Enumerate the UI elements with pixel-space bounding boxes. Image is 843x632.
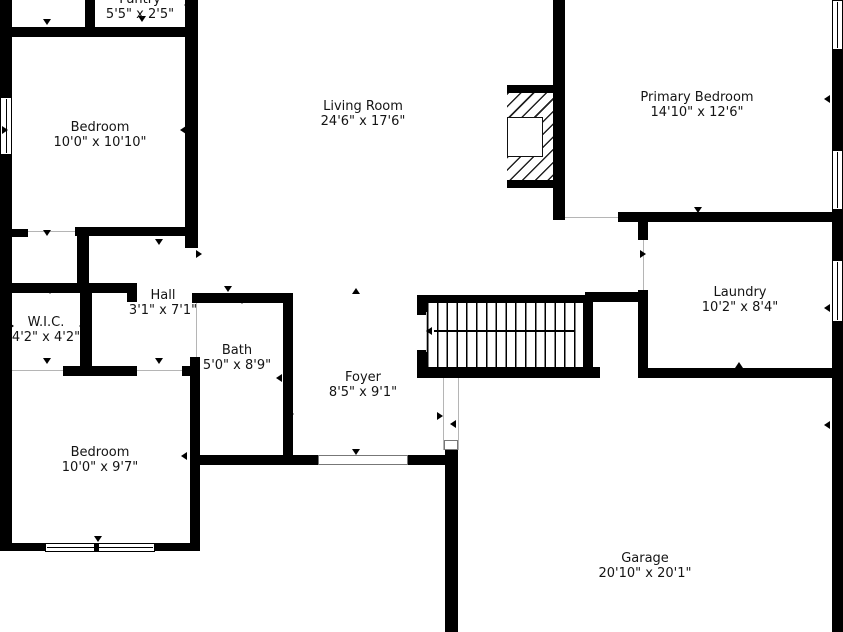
door-marker-icon	[735, 213, 743, 219]
door-marker-icon	[155, 239, 163, 245]
door-marker-icon	[824, 304, 830, 312]
door-marker-icon	[824, 95, 830, 103]
room-name: Bath	[203, 344, 271, 359]
door-marker-icon	[43, 19, 51, 25]
door-marker-icon	[238, 298, 246, 304]
wall	[190, 357, 200, 551]
door-marker-icon	[640, 250, 646, 258]
door-marker-icon	[558, 95, 564, 103]
wall	[638, 290, 648, 378]
window	[832, 150, 843, 210]
room-dims: 14'10" x 12'6"	[640, 106, 753, 121]
window-mullion	[94, 543, 99, 552]
room-dims: 10'0" x 10'10"	[54, 136, 147, 151]
door-marker-icon	[180, 126, 186, 134]
room-label-bedroom-1: Bedroom 10'0" x 10'10"	[54, 121, 147, 150]
front-door	[318, 455, 408, 465]
wall	[638, 222, 648, 240]
wall	[0, 155, 12, 551]
fireplace-bottom	[507, 180, 557, 188]
door-marker-icon	[224, 286, 232, 292]
wall	[832, 210, 843, 260]
door-marker-icon	[352, 288, 360, 294]
wall	[0, 0, 12, 97]
room-label-primary-bedroom: Primary Bedroom 14'10" x 12'6"	[640, 91, 753, 120]
door-marker-icon	[288, 410, 294, 418]
door-marker-icon	[735, 362, 743, 368]
window	[832, 260, 843, 322]
room-name: W.I.C.	[12, 316, 80, 331]
door-marker-icon	[276, 374, 282, 382]
window	[45, 543, 155, 552]
room-name: Hall	[129, 289, 197, 304]
room-dims: 10'2" x 8'4"	[702, 301, 778, 316]
wall	[618, 212, 843, 222]
door-marker-icon	[2, 451, 8, 459]
room-dims: 24'6" x 17'6"	[321, 115, 406, 130]
wall	[0, 543, 45, 551]
wall	[417, 295, 593, 303]
wall	[445, 450, 458, 632]
wall	[585, 292, 648, 302]
wall	[417, 350, 427, 378]
room-name: Garage	[599, 552, 692, 567]
fireplace-firebox	[507, 117, 543, 157]
door-marker-icon	[184, 1, 190, 9]
wall	[185, 0, 198, 248]
wall	[77, 229, 89, 290]
room-dims: 5'0" x 8'9"	[203, 359, 271, 374]
door-marker-icon	[2, 126, 8, 134]
door-opening	[643, 240, 644, 290]
room-label-hall: Hall 3'1" x 7'1"	[129, 289, 197, 318]
door-marker-icon	[824, 421, 830, 429]
stair-direction-line	[434, 330, 575, 332]
door-marker-icon	[155, 358, 163, 364]
wall	[832, 322, 843, 632]
room-label-bath: Bath 5'0" x 8'9"	[203, 344, 271, 373]
room-label-foyer: Foyer 8'5" x 9'1"	[329, 371, 397, 400]
room-dims: 20'10" x 20'1"	[599, 567, 692, 582]
door-opening	[137, 370, 182, 371]
room-label-bedroom-2: Bedroom 10'0" x 9'7"	[62, 446, 138, 475]
floor-plan: Pantry 5'5" x 2'5" Bedroom 10'0" x 10'10…	[0, 0, 843, 632]
room-name: Foyer	[329, 371, 397, 386]
room-dims: 8'5" x 9'1"	[329, 386, 397, 401]
door-opening	[12, 370, 63, 371]
room-dims: 4'2" x 4'2"	[12, 331, 80, 346]
door-marker-icon	[43, 358, 51, 364]
room-name: Laundry	[702, 286, 778, 301]
wall	[638, 368, 843, 378]
door-opening	[28, 231, 75, 232]
door-marker-icon	[694, 207, 702, 213]
room-name: Primary Bedroom	[640, 91, 753, 106]
staircase-treads	[427, 303, 583, 367]
door-opening	[565, 217, 618, 218]
door-marker-icon	[352, 449, 360, 455]
room-name: Living Room	[321, 100, 406, 115]
room-label-garage: Garage 20'10" x 20'1"	[599, 552, 692, 581]
door-marker-icon	[94, 536, 102, 542]
room-dims: 3'1" x 7'1"	[129, 304, 197, 319]
stair-direction-arrow-icon	[426, 327, 432, 335]
fireplace-top	[507, 85, 557, 93]
door-marker-icon	[88, 1, 94, 9]
door-marker-icon	[181, 452, 187, 460]
door-marker-icon	[437, 412, 443, 420]
door-marker-icon	[46, 288, 54, 294]
wall	[155, 543, 200, 551]
door-opening	[458, 378, 459, 450]
room-label-pantry: Pantry 5'5" x 2'5"	[106, 0, 174, 22]
door-marker-icon	[96, 30, 104, 36]
wall	[583, 295, 593, 378]
room-name: Bedroom	[62, 446, 138, 461]
wall	[190, 455, 318, 465]
door-marker-icon	[450, 420, 456, 428]
door-marker-icon	[43, 230, 51, 236]
room-name: Bedroom	[54, 121, 147, 136]
door-marker-icon	[196, 250, 202, 258]
room-dims: 5'5" x 2'5"	[106, 8, 174, 23]
room-label-living-room: Living Room 24'6" x 17'6"	[321, 100, 406, 129]
garage-door-opening	[444, 440, 458, 450]
door-marker-icon	[97, 368, 105, 374]
wall	[283, 293, 293, 465]
wall	[12, 229, 28, 237]
wall	[832, 50, 843, 150]
wall	[75, 227, 185, 236]
room-label-laundry: Laundry 10'2" x 8'4"	[702, 286, 778, 315]
window	[832, 0, 843, 50]
room-label-wic: W.I.C. 4'2" x 4'2"	[12, 316, 80, 345]
room-dims: 10'0" x 9'7"	[62, 461, 138, 476]
wall	[417, 367, 600, 378]
